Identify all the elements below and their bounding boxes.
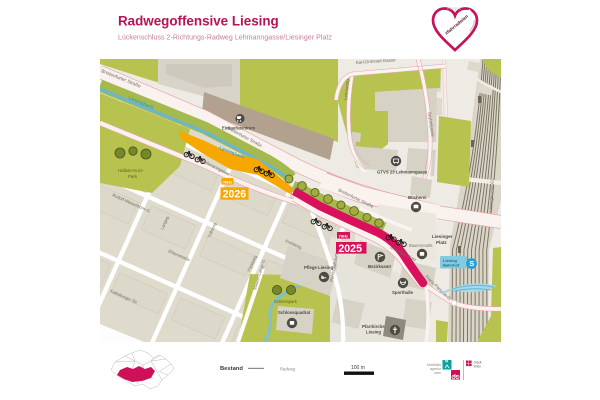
svg-text:Radwegoffensive Liesing: Radwegoffensive Liesing [118, 13, 279, 28]
svg-text:Liesinger: Liesinger [432, 234, 453, 239]
svg-text:Lückenschluss 2-Richtungs-Radw: Lückenschluss 2-Richtungs-Radweg Lehmann… [118, 35, 332, 42]
svg-text:Liesing: Liesing [366, 329, 381, 334]
svg-text:neu: neu [223, 180, 232, 185]
svg-text:Pflege Liesing: Pflege Liesing [304, 265, 334, 270]
svg-text:Radweg: Radweg [280, 367, 296, 372]
svg-text:Schlossquadrat: Schlossquadrat [278, 310, 311, 315]
svg-text:wien: wien [434, 371, 441, 375]
svg-text:Bücherei: Bücherei [408, 195, 426, 200]
svg-text:Schlosspark: Schlosspark [274, 299, 298, 304]
svg-text:neu: neu [339, 234, 348, 239]
svg-text:Einkaufszentrum: Einkaufszentrum [222, 126, 255, 131]
svg-text:#fahrradwien: #fahrradwien [444, 13, 469, 35]
svg-text:Platz: Platz [436, 240, 447, 245]
svg-text:Sporthalle: Sporthalle [392, 290, 414, 295]
svg-text:Bezirksamt: Bezirksamt [368, 264, 391, 269]
svg-text:S: S [469, 259, 474, 268]
svg-text:Bauernmarkt: Bauernmarkt [409, 243, 433, 248]
svg-text:wien.gv.at: wien.gv.at [447, 7, 461, 11]
svg-text:2025: 2025 [338, 243, 362, 255]
svg-text:Bestand: Bestand [220, 366, 243, 372]
svg-text:Wien: Wien [474, 365, 482, 369]
svg-text:Park: Park [128, 174, 138, 179]
svg-text:Bahnhof: Bahnhof [443, 263, 460, 268]
svg-text:Halban-Kurz-: Halban-Kurz- [118, 168, 144, 173]
svg-text:2026: 2026 [223, 189, 247, 201]
svg-text:Pfarrkirche: Pfarrkirche [362, 324, 385, 329]
svg-text:GTVS 23 Lehmanngasse: GTVS 23 Lehmanngasse [377, 170, 428, 175]
svg-text:100 m: 100 m [351, 365, 365, 371]
